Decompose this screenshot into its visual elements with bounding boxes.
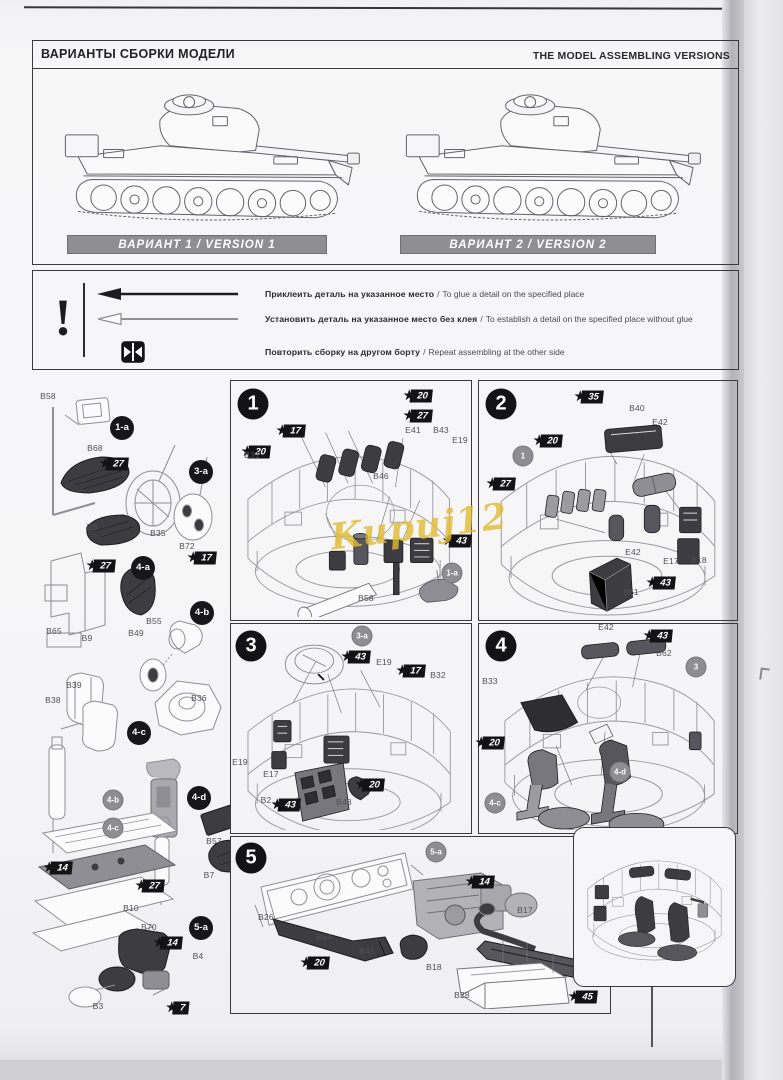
- header-divider: [33, 68, 738, 69]
- versions-header-box: ВАРИАНТЫ СБОРКИ МОДЕЛИ THE MODEL ASSEMBL…: [32, 40, 739, 265]
- legend-row-glue: Приклеить деталь на указанное место/To g…: [93, 287, 584, 301]
- page-title-ru: ВАРИАНТЫ СБОРКИ МОДЕЛИ: [41, 47, 235, 61]
- legend-text: Приклеить деталь на указанное место/To g…: [243, 289, 584, 299]
- inset-pointer-line: [651, 985, 653, 1047]
- legend-text: Установить деталь на указанное место без…: [243, 314, 693, 324]
- glue-arrow-icon: [93, 287, 243, 301]
- legend-row-repeat: Повторить сборку на другом борту/Repeat …: [93, 341, 565, 363]
- page-title-en: THE MODEL ASSEMBLING VERSIONS: [533, 50, 730, 62]
- tank-illustration-version-2: [368, 73, 736, 235]
- completed-interior-inset: [573, 827, 736, 987]
- left-column-subassembly-art: [25, 385, 230, 1015]
- backdrop-right: [744, 0, 783, 1080]
- step-2-panel: [478, 380, 738, 621]
- next-page-fragment: [759, 667, 770, 680]
- version-2-bar: ВАРИАНТ 2 / VERSION 2: [400, 235, 656, 254]
- no-glue-arrow-icon: [93, 312, 243, 326]
- repeat-side-icon: [93, 341, 243, 363]
- legend-box: ! Приклеить деталь на указанное место/To…: [32, 270, 739, 370]
- legend-divider: [83, 283, 85, 357]
- step-1-panel: [230, 380, 472, 621]
- legend-row-no-glue: Установить деталь на указанное место без…: [93, 312, 693, 326]
- version-1-bar: ВАРИАНТ 1 / VERSION 1: [67, 235, 327, 254]
- scanned-instruction-page: ВАРИАНТЫ СБОРКИ МОДЕЛИ THE MODEL ASSEMBL…: [0, 0, 783, 1080]
- tank-illustration-version-1: [35, 73, 387, 235]
- step-5-panel: [230, 836, 611, 1014]
- attention-mark: !: [43, 281, 83, 357]
- step-3-panel: [230, 623, 472, 834]
- step-4-panel: [478, 623, 738, 834]
- legend-text: Повторить сборку на другом борту/Repeat …: [243, 347, 565, 357]
